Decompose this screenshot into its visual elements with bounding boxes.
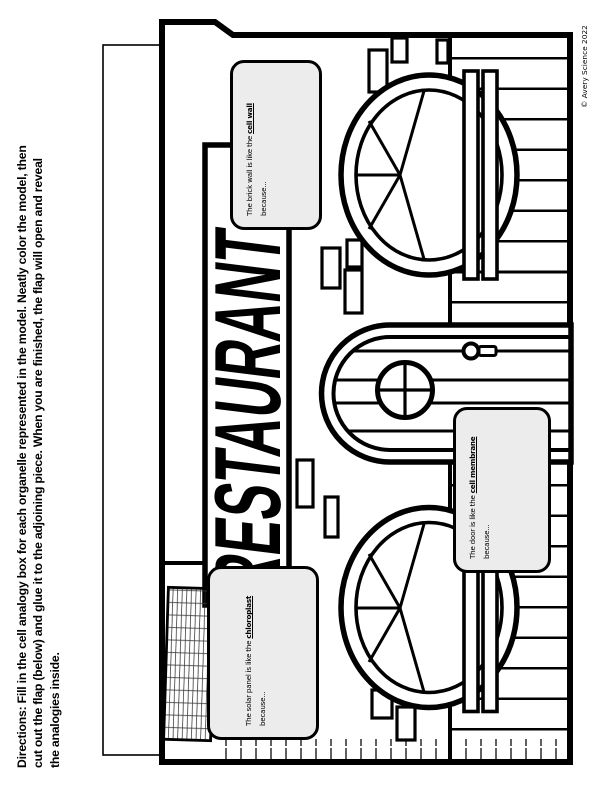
analogy-because: because...: [257, 74, 271, 216]
directions-line-3: the analogies inside.: [47, 8, 63, 768]
sign-text: RESTAURANT: [197, 224, 301, 599]
organelle-term: cell wall: [245, 103, 254, 134]
analogy-because: because...: [480, 421, 494, 559]
copyright-credit: © Avery Science 2022: [580, 20, 589, 108]
analogy-pre-text: The door is like the: [468, 493, 477, 559]
brick: [297, 460, 313, 507]
porthole-window: [378, 363, 433, 418]
analogy-sentence: The door is like the cell membrane: [466, 421, 480, 559]
brick: [392, 38, 407, 62]
organelle-term: chloroplast: [244, 596, 253, 639]
analogy-pre-text: The brick wall is like the: [245, 134, 254, 216]
analogy-sentence: The solar panel is like the chloroplast: [242, 580, 256, 726]
directions-line-1: Directions: Fill in the cell analogy box…: [14, 8, 30, 768]
directions-text: Directions: Fill in the cell analogy box…: [14, 8, 63, 768]
analogy-box-chloroplast: The solar panel is like the chloroplast …: [207, 566, 319, 740]
directions-line-2: cut out the flap (below) and glue it to …: [30, 8, 46, 768]
door-knob: [464, 344, 497, 359]
directions-label: Directions:: [15, 707, 29, 768]
brick: [347, 240, 362, 267]
flap-fold-line: [103, 45, 163, 755]
brick: [325, 497, 338, 537]
worksheet-page: RESTAURANT: [0, 0, 612, 792]
analogy-box-cell-membrane: The door is like the cell membrane becau…: [453, 407, 551, 573]
fan-window-right: [341, 71, 517, 279]
brick: [437, 40, 448, 63]
analogy-sentence: The brick wall is like the cell wall: [243, 74, 257, 216]
organelle-term: cell membrane: [468, 437, 477, 494]
rotated-worksheet: RESTAURANT: [0, 0, 612, 792]
brick: [397, 707, 415, 740]
analogy-because: because...: [256, 580, 270, 726]
directions-line-1-text: Fill in the cell analogy box for each or…: [15, 145, 29, 706]
analogy-pre-text: The solar panel is like the: [244, 639, 253, 726]
brick: [345, 270, 362, 313]
analogy-box-cell-wall: The brick wall is like the cell wall bec…: [230, 60, 322, 230]
brick: [322, 248, 340, 288]
